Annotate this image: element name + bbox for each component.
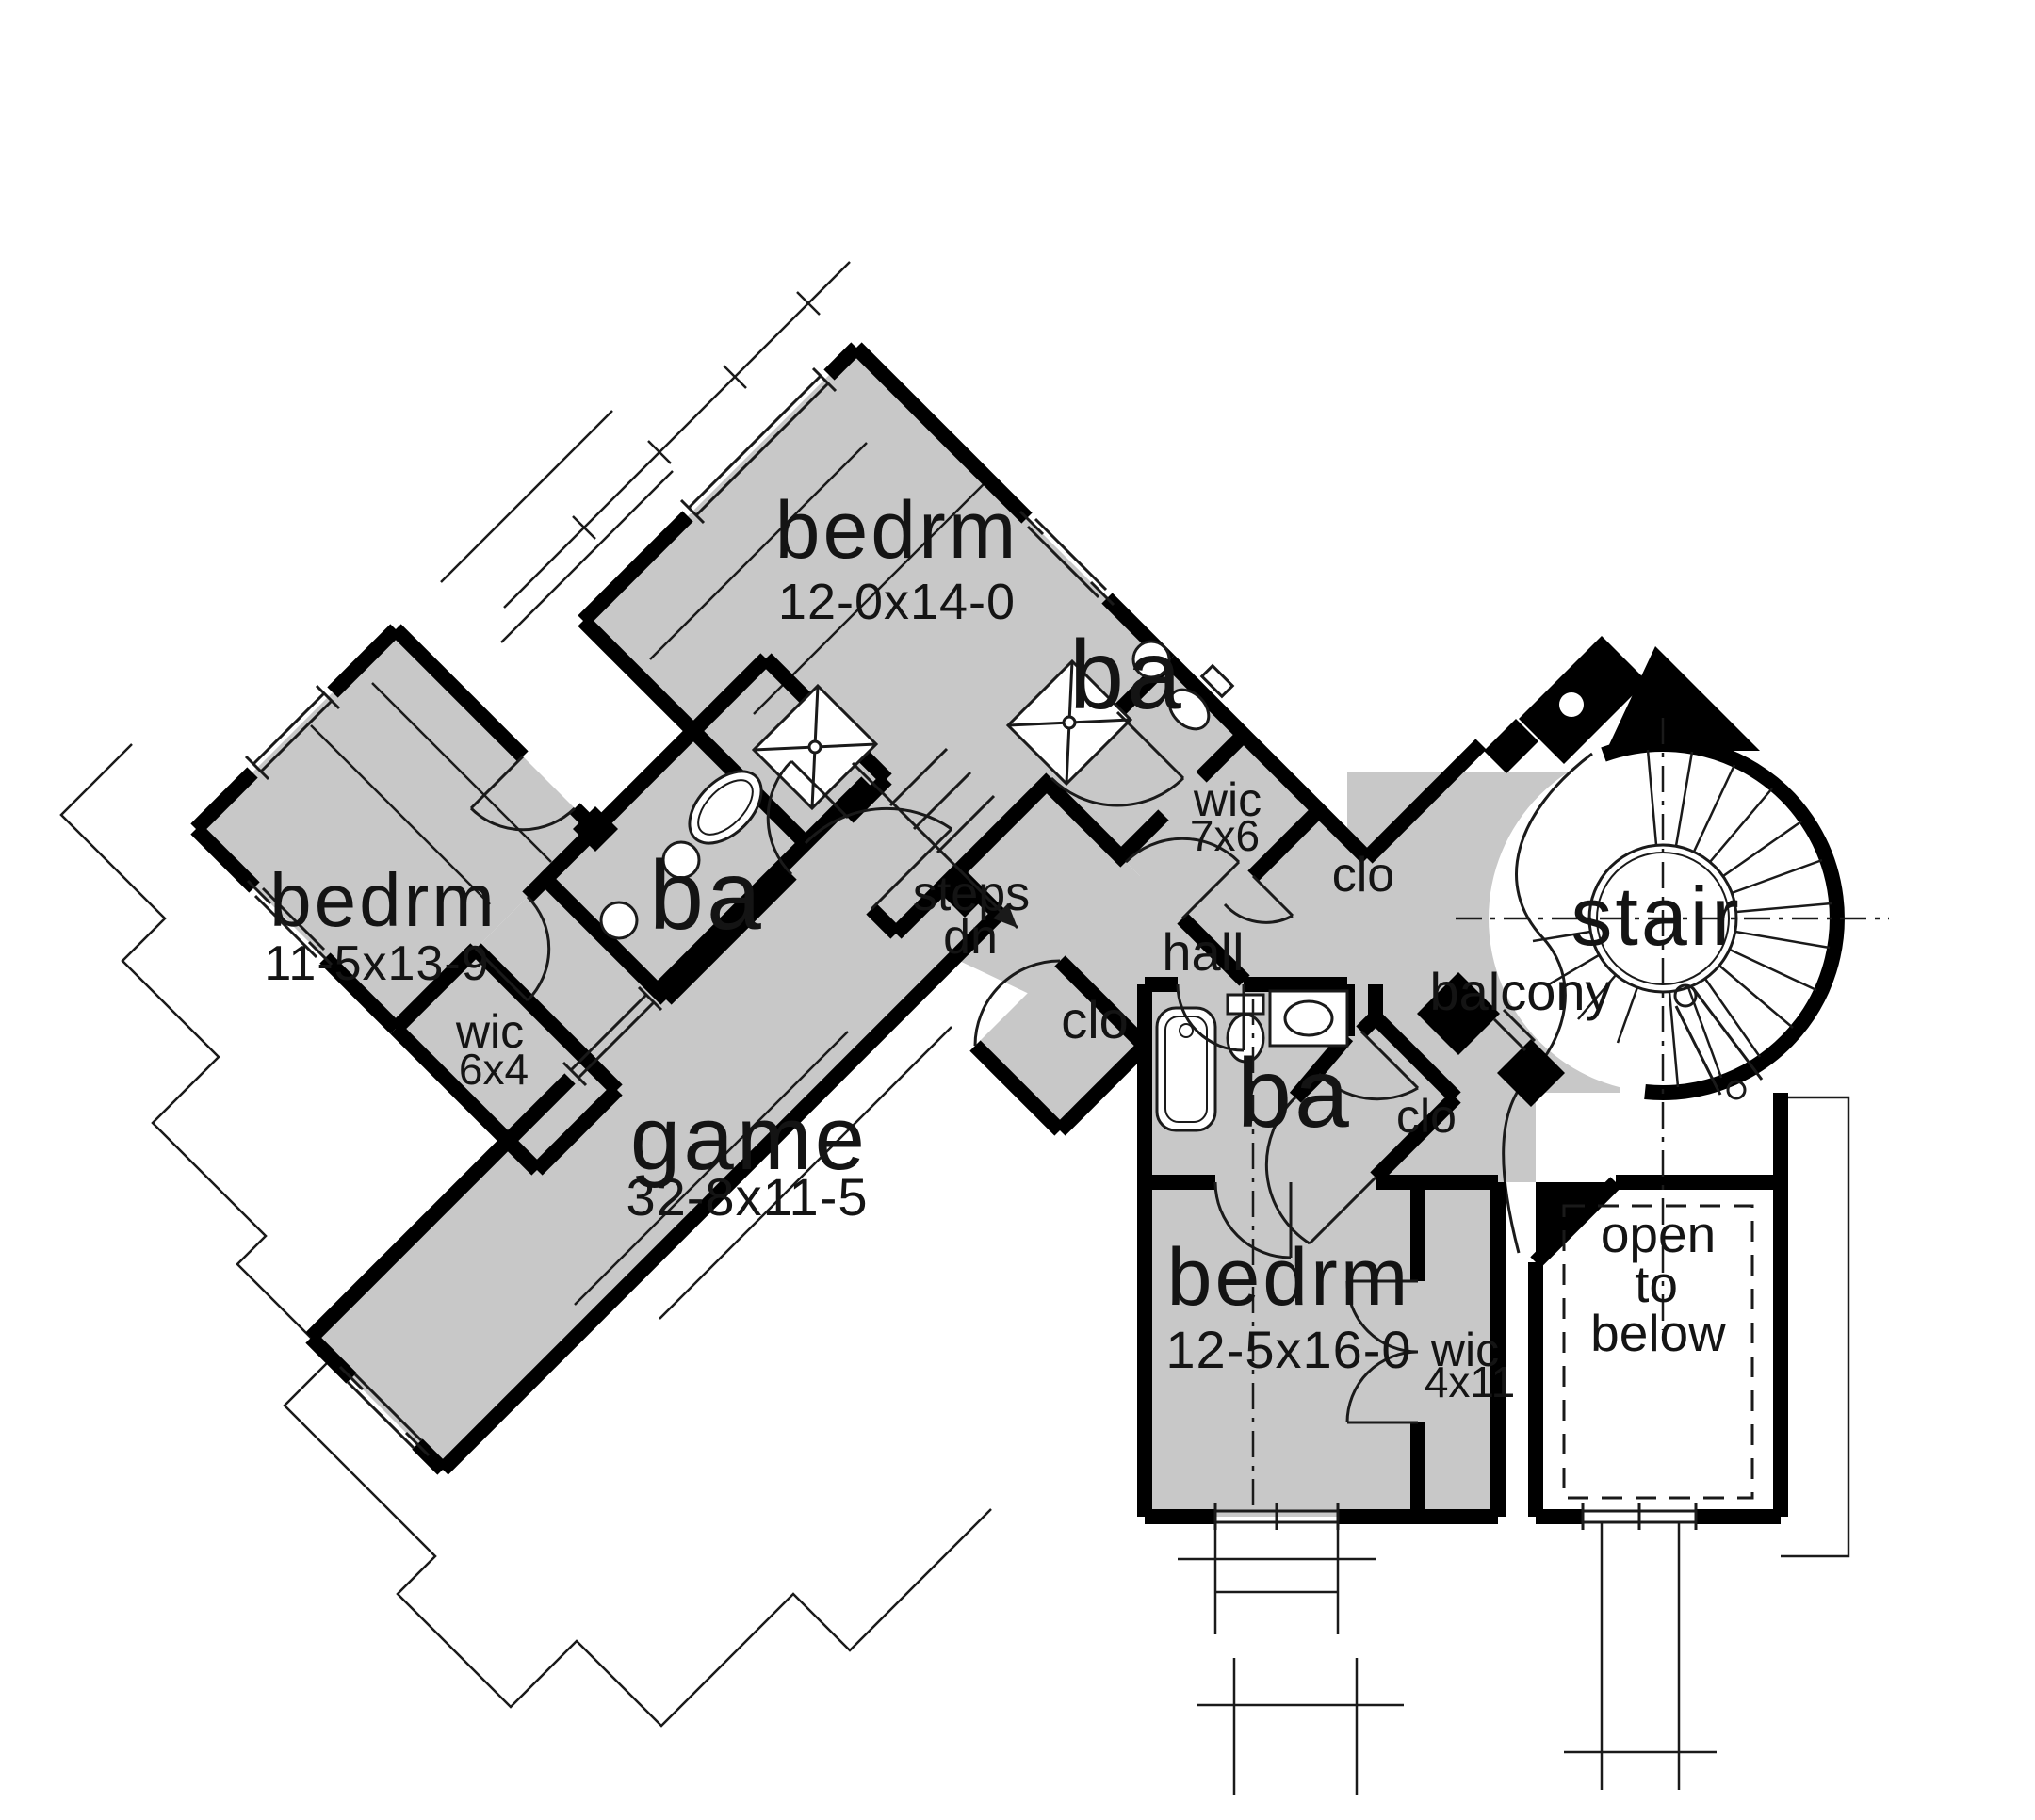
dims-game: 32-8x11-5 [626, 1167, 868, 1227]
sink-bath-middle-2 [601, 902, 637, 938]
label-closet-center: clo [1061, 990, 1129, 1049]
label-bedroom-top: bedrm [775, 485, 1019, 576]
tub-bath-bottom [1157, 1008, 1215, 1130]
label-bath-top: ba [1069, 621, 1184, 730]
label-stair: stair [1571, 869, 1741, 963]
sink-bath-bottom [1270, 991, 1347, 1046]
dims-wic-bottom: 4x11 [1424, 1357, 1515, 1406]
dims-wic-left: 6x4 [459, 1045, 529, 1094]
label-bath-middle: ba [649, 841, 764, 951]
label-hall: hall [1162, 922, 1244, 982]
label-bath-bottom: ba [1237, 1039, 1352, 1148]
dims-bedroom-bottom: 12-5x16-0 [1165, 1320, 1411, 1379]
label-steps-dn: dn [943, 910, 998, 965]
chimney-flue [1559, 692, 1584, 717]
label-bedroom-bottom: bedrm [1167, 1232, 1411, 1323]
label-closet-bottom: clo [1396, 1090, 1457, 1143]
floor-plan-canvas: bedrm 12-0x14-0 ba wic 7x6 clo steps dn … [0, 0, 2035, 1820]
outline-open-below-right [1781, 1097, 1848, 1556]
dims-bedroom-left: 11-5x13-9 [264, 936, 489, 991]
floor-plan-page: bedrm 12-0x14-0 ba wic 7x6 clo steps dn … [0, 0, 2035, 1820]
label-bedroom-left: bedrm [269, 858, 497, 942]
dims-wic-top: 7x6 [1190, 811, 1260, 860]
label-balcony: balcony [1429, 962, 1611, 1021]
label-closet-top: clo [1332, 848, 1394, 902]
label-open-3: below [1590, 1304, 1726, 1362]
dims-bedroom-top: 12-0x14-0 [778, 574, 1016, 630]
